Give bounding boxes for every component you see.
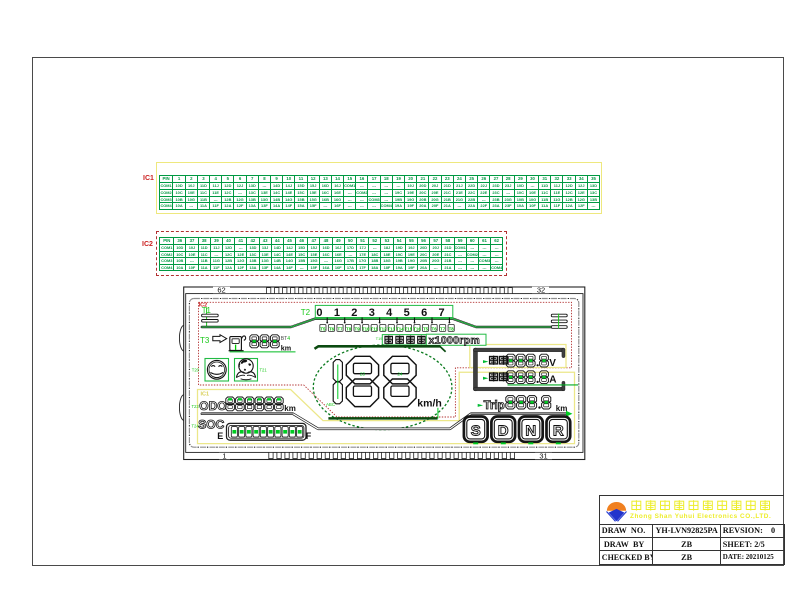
svg-text:T5: T5	[320, 326, 326, 331]
svg-text:x1000rpm: x1000rpm	[429, 334, 480, 346]
svg-text:T7: T7	[440, 326, 446, 331]
svg-text:2: 2	[351, 307, 357, 319]
svg-text:IC1: IC1	[201, 392, 210, 398]
svg-text:24: 24	[397, 372, 403, 377]
svg-text:A: A	[549, 374, 556, 385]
svg-text:SOC: SOC	[198, 417, 224, 431]
svg-text:km: km	[556, 404, 568, 413]
svg-text:T8: T8	[346, 326, 352, 331]
svg-text:1: 1	[222, 452, 226, 461]
svg-text:T10: T10	[362, 326, 370, 331]
svg-text:BT4: BT4	[281, 336, 290, 342]
svg-text:5: 5	[404, 307, 410, 319]
svg-text:62: 62	[217, 286, 225, 295]
svg-text:T12: T12	[379, 326, 387, 331]
svg-text:D: D	[498, 423, 509, 440]
svg-text:23: 23	[360, 372, 366, 377]
svg-text:S: S	[471, 423, 481, 440]
svg-text:km: km	[281, 343, 291, 352]
svg-text:6: 6	[421, 307, 427, 319]
svg-text:T16: T16	[413, 326, 421, 331]
svg-text:T19: T19	[376, 337, 383, 341]
svg-text:km: km	[284, 404, 296, 413]
svg-text:31: 31	[539, 452, 547, 461]
svg-text:T8: T8	[449, 326, 455, 331]
svg-text:T2: T2	[301, 308, 311, 317]
svg-text:R: R	[553, 423, 564, 440]
svg-text:km/h: km/h	[417, 397, 442, 409]
svg-text:0: 0	[316, 307, 322, 319]
svg-text:T15: T15	[405, 326, 413, 331]
svg-text:E: E	[217, 431, 223, 441]
svg-text:T6: T6	[329, 326, 335, 331]
svg-text:T13: T13	[388, 326, 396, 331]
svg-text:ABC: ABC	[326, 402, 335, 407]
svg-text:V: V	[549, 358, 556, 369]
svg-text:T9: T9	[355, 326, 361, 331]
svg-text:Trip: Trip	[484, 400, 505, 412]
svg-text:T11: T11	[371, 326, 379, 331]
svg-text:T20: T20	[192, 367, 200, 372]
svg-text:T6: T6	[432, 326, 438, 331]
svg-text:ODO: ODO	[199, 399, 226, 413]
svg-text:T23: T23	[192, 404, 200, 409]
svg-text:T3: T3	[200, 336, 210, 345]
svg-text:3: 3	[369, 307, 375, 319]
svg-text:N: N	[525, 423, 536, 440]
svg-text:T14: T14	[396, 326, 404, 331]
svg-text:T7: T7	[337, 326, 343, 331]
svg-text:4: 4	[386, 307, 393, 319]
svg-text:7: 7	[439, 307, 445, 319]
svg-text:T21: T21	[260, 367, 268, 372]
svg-text:T5: T5	[423, 326, 429, 331]
svg-text:1: 1	[334, 307, 340, 319]
svg-text:F: F	[306, 431, 312, 441]
svg-text:32: 32	[537, 286, 545, 295]
